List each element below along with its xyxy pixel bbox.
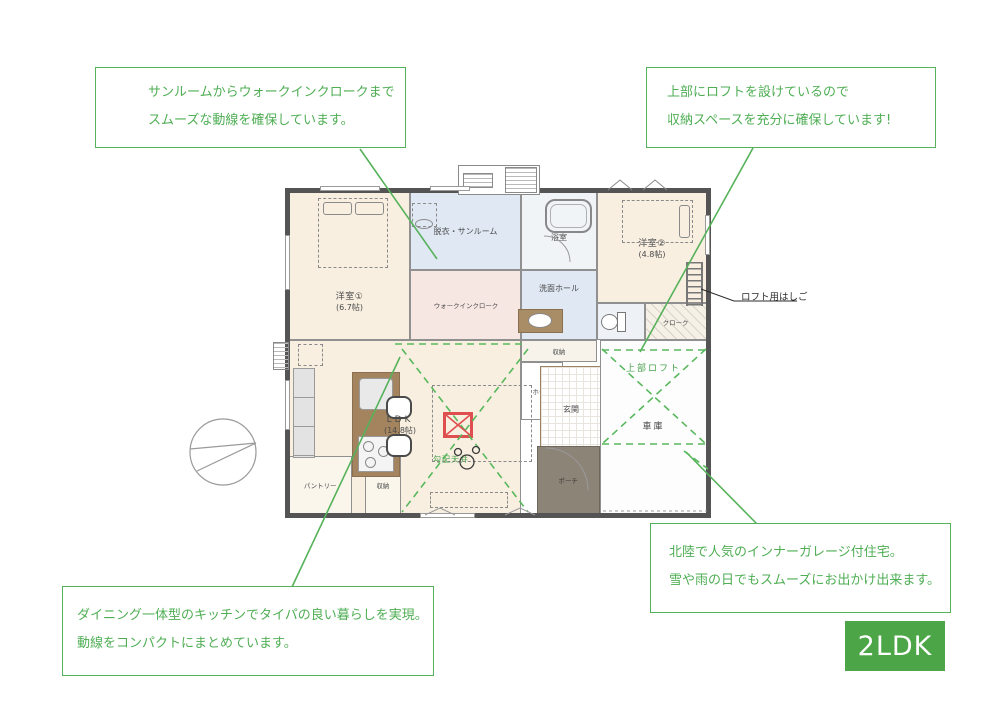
callout-loft-line1: 上部にロフトを設けているので (667, 79, 935, 107)
callout-kitchen-line1: ダイニング一体型のキッチンでタイパの良い暮らしを実現。 (77, 602, 433, 630)
window-icon (420, 513, 475, 518)
pillow-icon (323, 202, 352, 215)
room-ldk-name: LDK (370, 415, 430, 425)
callout-sunroom: サンルームからウォークインクロークまで スムーズな動線を確保しています。 (95, 67, 406, 148)
pillow-icon (679, 205, 690, 238)
room-ldk-label: LDK (14.8帖) (370, 415, 430, 436)
spec-note-box (273, 342, 289, 370)
washbasin-bowl-icon (528, 313, 552, 328)
sloped-ceiling-label: 勾配天井 (433, 454, 469, 465)
tv-board-icon (430, 492, 508, 508)
floorplan-page: サンルームからウォークインクロークまで スムーズな動線を確保しています。 上部に… (0, 0, 1000, 707)
room-ldk-size: (14.8帖) (370, 425, 430, 436)
chair-icon (386, 434, 412, 457)
window-icon (285, 235, 290, 290)
refrigerator-icon (298, 344, 323, 366)
window-icon (320, 186, 380, 191)
room-wash-hall-label: 洗面ホール (539, 283, 579, 294)
room-bathroom-label: 浴室 (551, 232, 567, 243)
toilet-icon (601, 314, 618, 330)
room-porch-label: ポーチ (559, 475, 578, 485)
compass-line (197, 443, 256, 471)
callout-sunroom-line2: スムーズな動線を確保しています。 (148, 107, 405, 135)
room-porch: ポーチ (537, 446, 600, 514)
room-cloak-label: クローク (663, 317, 689, 327)
bathtub-inner (550, 204, 587, 228)
floor-plan: 洋室① (6.7帖) 脱衣・サンルーム ウォークインクローク 浴室 洗面ホール … (285, 188, 711, 518)
callout-loft: 上部にロフトを設けているので 収納スペースを充分に確保しています! (646, 67, 936, 148)
burner-icon (363, 441, 374, 452)
window-icon (285, 380, 290, 430)
window-icon (430, 186, 470, 191)
callout-kitchen: ダイニング一体型のキッチンでタイパの良い暮らしを実現。 動線をコンパクトにまとめ… (62, 586, 434, 676)
room-storage-mid: 収納 (521, 340, 597, 362)
compass-circle (190, 419, 256, 485)
burner-icon (365, 457, 376, 468)
callout-garage-line1: 北陸で人気のインナーガレージ付住宅。 (669, 539, 950, 567)
pillow-icon (355, 202, 384, 215)
room-entrance: 玄関 (540, 366, 602, 452)
loft-ladder-label: ロフト用はしご (741, 289, 808, 303)
spec-note-box (505, 167, 537, 193)
layout-badge: 2LDK (845, 621, 945, 671)
room-storage-mid-label: 収納 (553, 346, 566, 356)
room-garage-label: 車庫 (601, 419, 706, 432)
room-sunroom-label: 脱衣・サンルーム (434, 226, 498, 237)
room-storage-small-label: 収納 (377, 480, 390, 490)
room-pantry: パントリー (289, 456, 352, 514)
toilet-tank-icon (617, 312, 626, 332)
room-bedroom2-size: (4.8帖) (639, 249, 666, 260)
laundry-sink-icon (415, 219, 433, 229)
room-bedroom1-size: (6.7帖) (336, 302, 363, 313)
room-pantry-label: パントリー (304, 480, 337, 490)
window-icon (705, 215, 710, 255)
room-wic: ウォークインクローク (410, 270, 521, 340)
compass-icon (190, 419, 256, 485)
room-wic-label: ウォークインクローク (433, 300, 498, 310)
room-cloak: クローク (645, 303, 707, 340)
callout-sunroom-line1: サンルームからウォークインクロークまで (148, 79, 405, 107)
loft-ladder-icon (686, 262, 703, 306)
room-entrance-label: 玄関 (563, 404, 579, 415)
room-bedroom1-name: 洋室① (336, 289, 364, 302)
callout-garage: 北陸で人気のインナーガレージ付住宅。 雪や雨の日でもスムーズにお出かけ出来ます。 (650, 523, 951, 613)
callout-loft-line2: 収納スペースを充分に確保しています! (667, 107, 935, 135)
wood-stove-icon (443, 412, 473, 438)
room-garage: 上部ロフト 車庫 (600, 340, 707, 514)
compass-line (190, 443, 256, 449)
room-upper-loft-label: 上部ロフト (601, 361, 706, 374)
callout-kitchen-line2: 動線をコンパクトにまとめています。 (77, 630, 433, 658)
cabinet-icon (293, 368, 315, 458)
callout-garage-line2: 雪や雨の日でもスムーズにお出かけ出来ます。 (669, 567, 950, 595)
